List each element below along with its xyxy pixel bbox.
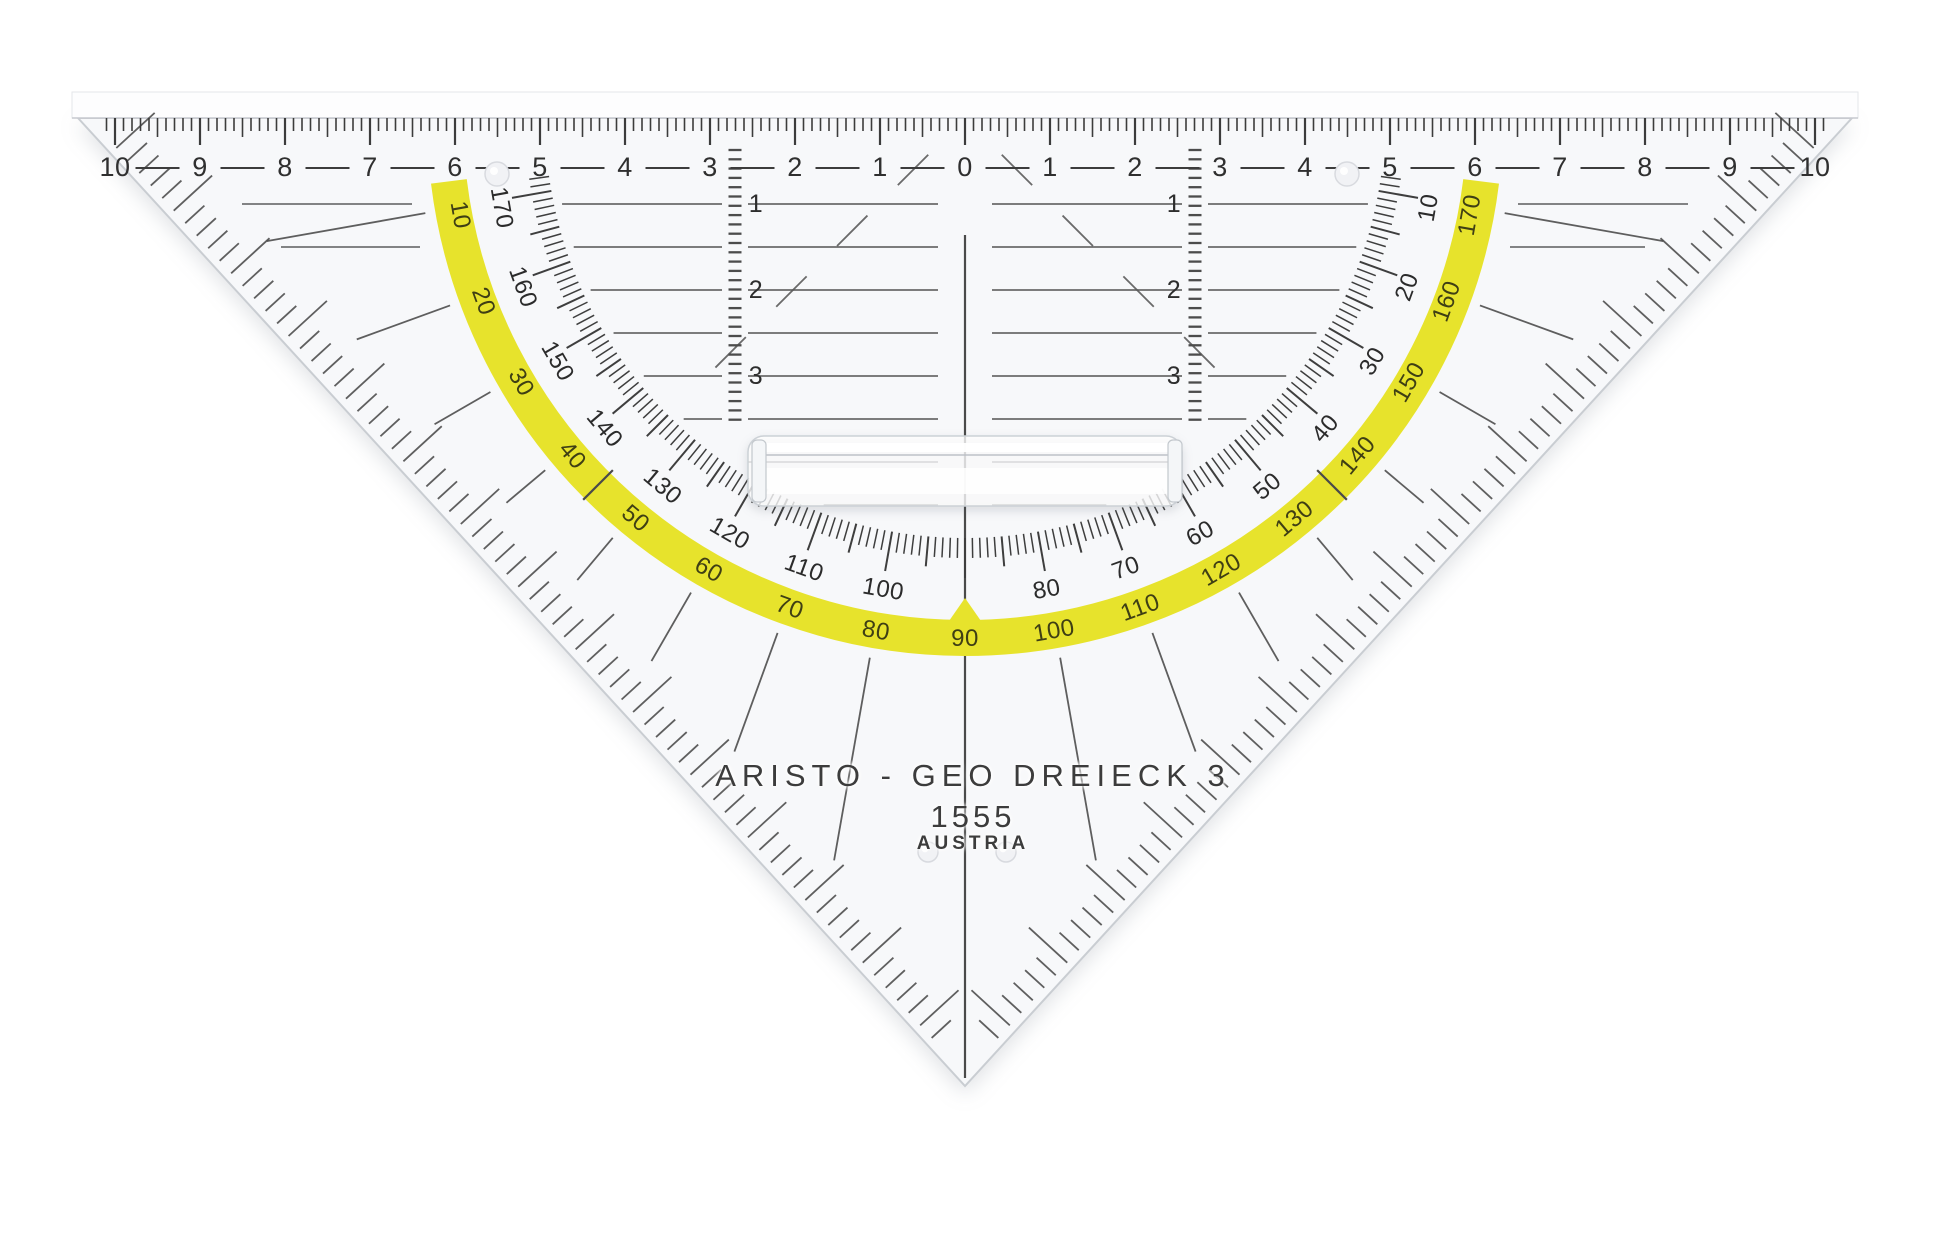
yellow-degree-scale-label: 90 bbox=[951, 625, 979, 652]
dashed-columns-label: 2 bbox=[749, 276, 763, 304]
cm-ruler-label: 4 bbox=[617, 152, 633, 182]
inner-degree-scale-label: 80 bbox=[1031, 574, 1063, 605]
brand-origin: AUSTRIA bbox=[0, 833, 1946, 855]
cm-ruler-label: 3 bbox=[1212, 152, 1228, 182]
cm-ruler-label: 9 bbox=[192, 152, 208, 182]
cm-ruler-label: 7 bbox=[1552, 152, 1568, 182]
cm-ruler-label: 10 bbox=[1799, 152, 1830, 182]
cm-ruler-label: 2 bbox=[787, 152, 803, 182]
yellow-degree-scale-label: 80 bbox=[860, 615, 892, 646]
cm-ruler-label: 5 bbox=[532, 152, 548, 182]
yellow-degree-scale-label: 10 bbox=[445, 199, 476, 231]
dashed-columns-label: 3 bbox=[749, 362, 763, 390]
cm-ruler-label: 1 bbox=[1042, 152, 1058, 182]
cm-ruler-label: 2 bbox=[1127, 152, 1143, 182]
cm-ruler-label: 3 bbox=[702, 152, 718, 182]
cm-ruler-label: 10 bbox=[99, 152, 130, 182]
cm-ruler-label: 8 bbox=[277, 152, 293, 182]
cm-ruler-label: 4 bbox=[1297, 152, 1313, 182]
cm-ruler-label: 5 bbox=[1382, 152, 1398, 182]
brand-model-number: 1555 bbox=[0, 799, 1946, 835]
cm-ruler-label: 7 bbox=[362, 152, 378, 182]
dashed-columns-label: 2 bbox=[1167, 276, 1181, 304]
geodreieck-product-photo: 1231231701601501401301201101008070605040… bbox=[0, 0, 1946, 1256]
inner-degree-scale-label: 10 bbox=[1413, 192, 1444, 224]
dashed-columns-label: 1 bbox=[1167, 190, 1181, 218]
cm-ruler-label: 6 bbox=[1467, 152, 1483, 182]
cm-ruler-label: 8 bbox=[1637, 152, 1653, 182]
dashed-columns-label: 3 bbox=[1167, 362, 1181, 390]
dashed-columns-label: 1 bbox=[749, 190, 763, 218]
cm-ruler-label: 0 bbox=[957, 152, 973, 182]
handle bbox=[748, 436, 1182, 506]
geodreieck-illustration: 1231231701601501401301201101008070605040… bbox=[0, 0, 1946, 1256]
cm-ruler-label: 9 bbox=[1722, 152, 1738, 182]
cm-ruler-label: 1 bbox=[872, 152, 888, 182]
cm-ruler-label: 6 bbox=[447, 152, 463, 182]
brand-title: ARISTO - GEO DREIECK 3 bbox=[0, 758, 1946, 794]
